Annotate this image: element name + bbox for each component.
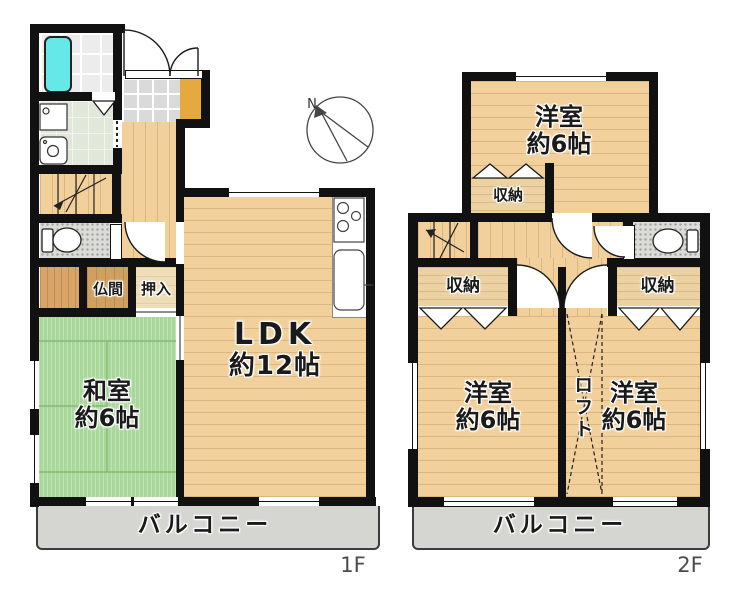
entrance-door <box>125 70 203 79</box>
door-opening <box>92 92 115 101</box>
wall <box>462 72 471 222</box>
wall <box>30 214 122 223</box>
window <box>228 188 320 197</box>
wall <box>508 262 517 316</box>
closet-label-top: 収納 <box>477 187 539 204</box>
genkan-entrance <box>122 78 180 122</box>
room-toilet-1f <box>40 222 110 258</box>
room-washroom <box>40 101 121 165</box>
wall <box>558 267 566 497</box>
wall <box>30 497 376 506</box>
sliding-door <box>176 316 184 360</box>
sliding-door <box>136 308 176 317</box>
closet-label-right: 収納 <box>615 277 700 296</box>
window <box>85 497 132 506</box>
wall <box>623 213 633 225</box>
toilet-door <box>623 225 635 260</box>
balcony-label-2f: バルコニー <box>445 513 675 539</box>
window <box>30 360 39 410</box>
room-label-bedroom-top: 洋室 約6帖 <box>499 104 619 158</box>
balcony-label-1f: バルコニー <box>90 513 320 539</box>
window <box>612 497 678 506</box>
door-opening <box>176 222 184 264</box>
room-label-oshiire: 押入 <box>135 281 177 298</box>
floor-plan: LDK 約12帖 和室 約6帖 仏間 押入 バルコニー 1F 洋室 約6帖 収納… <box>0 0 741 600</box>
window <box>443 497 535 506</box>
wall <box>545 163 554 213</box>
room-size: 約6帖 <box>47 405 167 432</box>
room-toilet-2f <box>633 222 700 258</box>
room-size: 約12帖 <box>195 352 355 381</box>
room-name: 洋室 <box>499 104 619 131</box>
room-name: 和室 <box>47 378 167 405</box>
window <box>701 362 710 450</box>
wall <box>366 188 375 506</box>
window <box>133 497 179 506</box>
window <box>515 72 607 81</box>
stairs-1f <box>40 173 112 214</box>
room-name: LDK <box>195 318 355 352</box>
tokonoma-strip <box>40 267 79 308</box>
loft-label: ロフト <box>571 366 592 450</box>
room-label-bedroom-left: 洋室 約6帖 <box>428 380 548 434</box>
wall <box>408 213 552 222</box>
wall <box>408 258 517 267</box>
compass-north-label: N <box>303 97 321 112</box>
room-name: 洋室 <box>428 380 548 407</box>
toilet-door <box>110 224 122 260</box>
shoe-cabinet <box>180 78 202 121</box>
wall <box>30 24 125 33</box>
closet-label-left: 収納 <box>418 277 508 296</box>
wall <box>470 222 478 258</box>
wall <box>649 72 658 222</box>
wall <box>30 165 122 174</box>
wall <box>176 119 185 197</box>
bathtub-icon <box>44 36 72 93</box>
wall <box>30 258 176 267</box>
room-size: 約6帖 <box>428 407 548 434</box>
window <box>408 362 417 450</box>
room-label-ldk: LDK 約12帖 <box>195 318 355 381</box>
window <box>30 434 39 484</box>
kitchen-counter <box>332 196 368 318</box>
room-label-washitsu: 和室 約6帖 <box>47 378 167 432</box>
floor-label-2f: 2F <box>670 553 710 577</box>
room-size: 約6帖 <box>499 131 619 158</box>
window <box>258 497 320 506</box>
room-label-butsuma: 仏間 <box>88 281 128 298</box>
floor-label-1f: 1F <box>333 553 373 577</box>
sliding-door <box>113 120 122 148</box>
hallway-1f <box>121 122 176 258</box>
door-opening <box>552 213 592 222</box>
wall <box>592 213 710 222</box>
